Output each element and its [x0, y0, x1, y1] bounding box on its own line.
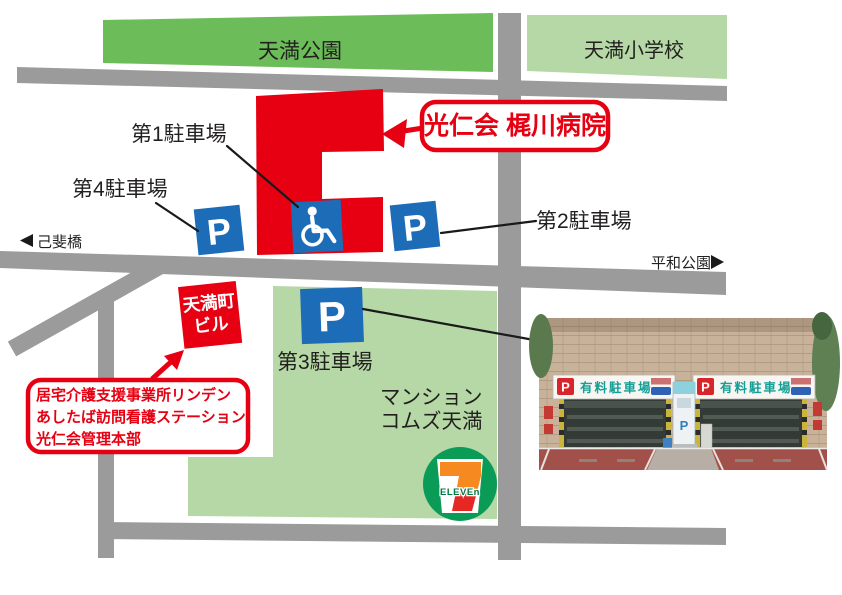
photo-foliage-right-top	[812, 312, 832, 340]
hospital-callout-arrow-icon	[382, 119, 407, 148]
photo-sign-left: P 有料駐車場	[553, 375, 675, 399]
parking-square-p4: P	[194, 205, 245, 256]
photo-pavement	[539, 448, 827, 470]
road-bottom-horizontal	[100, 522, 726, 545]
photo-side-pillar	[701, 424, 712, 448]
photo-wall-sign	[544, 406, 553, 419]
photo-garage-opening-left	[559, 397, 671, 447]
label-east-direction: 平和公園	[651, 255, 711, 272]
p3-letter: P	[317, 293, 347, 341]
photo-payment-kiosk: P	[671, 382, 697, 448]
parking-square-p3: P	[300, 287, 364, 344]
photo-foliage-left	[529, 314, 553, 378]
road-vertical-center	[498, 13, 521, 560]
photo-sign-price-badge	[651, 387, 671, 395]
label-park: 天満公園	[258, 40, 342, 63]
photo-wall-sign	[813, 420, 822, 430]
photo-sign-text: 有料駐車場	[720, 380, 793, 395]
east-direction-arrow-icon	[711, 255, 724, 269]
office-label-line3: 光仁会管理本部	[35, 430, 141, 448]
road-diagonal	[12, 266, 160, 349]
label-parking4: 第4駐車場	[72, 178, 168, 201]
office-label-line1: 居宅介護支援事業所リンデン	[36, 386, 231, 404]
office-callout-line	[152, 361, 172, 379]
label-school: 天満小学校	[584, 39, 684, 62]
photo-parking-entrance: P 有料駐車場 P 有料駐車場 P	[529, 312, 840, 470]
photo-sign-p-letter: P	[561, 380, 570, 395]
label-west-direction: 己斐橋	[37, 234, 82, 251]
photo-sign-right: P 有料駐車場	[693, 375, 815, 399]
pointer-line-p4	[156, 203, 198, 231]
label-parking1: 第1駐車場	[131, 123, 227, 146]
photo-kiosk-p-letter: P	[680, 418, 689, 433]
seven-eleven-eleven-text: ELEVEn	[440, 487, 480, 498]
tenmacho-building: 天満町 ビル	[178, 281, 242, 349]
p2-letter: P	[401, 206, 429, 249]
photo-sign-p-letter: P	[701, 380, 710, 395]
west-direction-arrow-icon	[20, 234, 33, 247]
label-parking3: 第3駐車場	[277, 351, 373, 374]
p4-letter: P	[205, 210, 233, 253]
label-mansion-line1: マンション	[380, 386, 483, 409]
parking-square-p2: P	[390, 201, 441, 252]
photo-blue-bin	[663, 438, 672, 448]
photo-sign-text: 有料駐車場	[580, 380, 653, 395]
photo-sign-price-badge	[791, 387, 811, 395]
office-label-line2: あしたば訪問看護ステーション	[36, 408, 246, 426]
label-parking2: 第2駐車場	[536, 210, 632, 233]
access-map: P P P 天満公園 天満小学校 第1駐車場 第4駐車場 第2駐車場 第3駐車場…	[0, 0, 842, 595]
photo-wall-sign	[544, 424, 553, 434]
seven-eleven-logo: ELEVEn	[423, 447, 497, 521]
label-mansion-line2: コムズ天満	[380, 410, 483, 433]
hospital-callout-label: 光仁会 梶川病院	[423, 111, 606, 140]
photo-sign-small-note	[651, 378, 671, 385]
map-svg: P P P 天満公園 天満小学校 第1駐車場 第4駐車場 第2駐車場 第3駐車場…	[0, 0, 842, 595]
tenmacho-label-line2: ビル	[193, 313, 230, 337]
photo-wall-sign	[813, 402, 822, 416]
pointer-line-p2	[441, 221, 536, 233]
photo-sign-small-note	[791, 378, 811, 385]
photo-top-shade	[539, 318, 827, 332]
